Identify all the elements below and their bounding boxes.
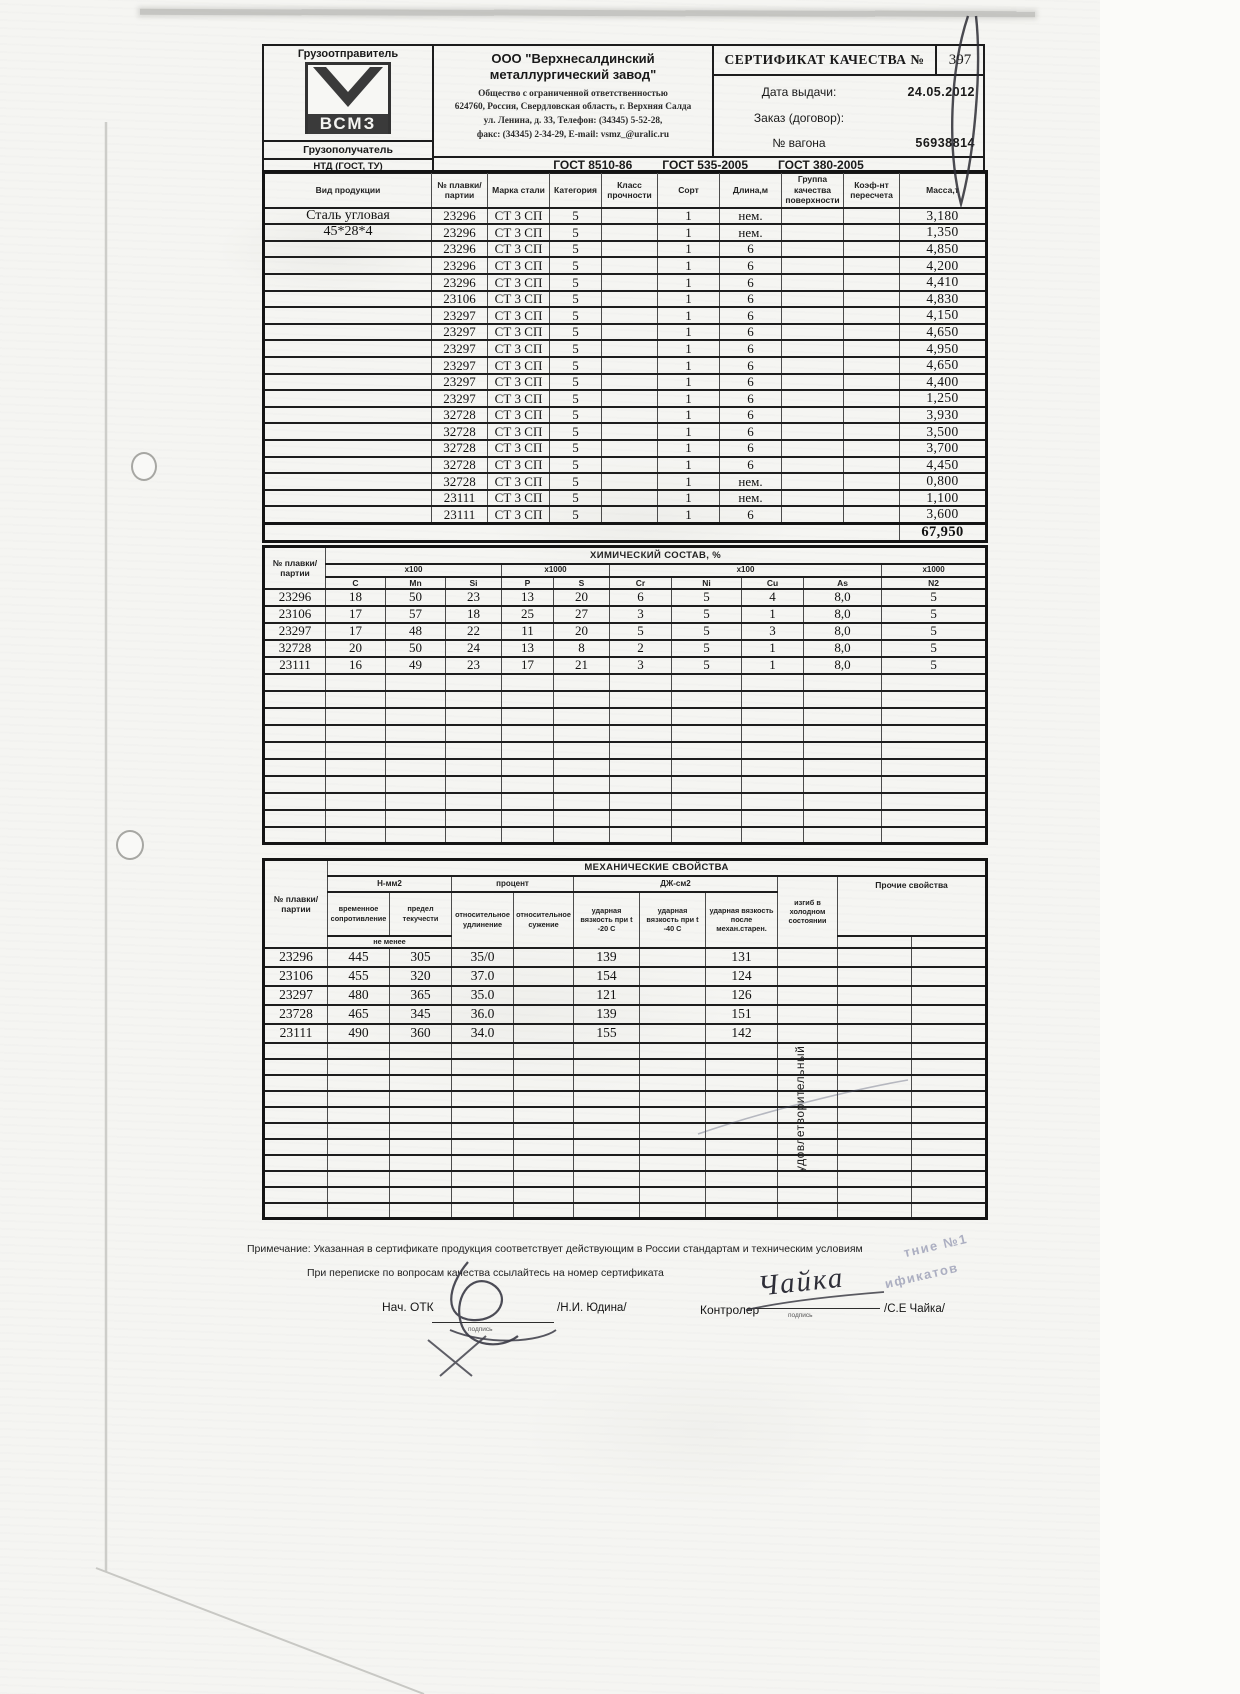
table-cell (602, 374, 658, 391)
table-row: 32728СТ 3 СП5163,930 (264, 407, 987, 424)
table-cell (782, 241, 844, 258)
table-cell: 8,0 (804, 589, 882, 606)
table-cell (386, 691, 446, 708)
table-cell (602, 307, 658, 324)
table-cell (844, 407, 900, 424)
table-cell: 4,650 (900, 324, 987, 341)
table-cell: 5 (550, 274, 602, 291)
table-cell: 8 (554, 640, 610, 657)
table-cell (838, 1171, 912, 1187)
table-cell (514, 1024, 574, 1043)
table-cell (264, 457, 432, 474)
table-cell (574, 1139, 640, 1155)
table-row: 2329644530535/0139131 (264, 948, 987, 967)
empty-row (264, 725, 987, 742)
table-cell (264, 523, 900, 541)
table-cell (452, 1155, 514, 1171)
table-cell: 32728 (432, 457, 488, 474)
table-cell (742, 810, 804, 827)
table-cell: 13 (502, 640, 554, 657)
table-cell: 32728 (432, 423, 488, 440)
table-cell: СТ 3 СП (488, 457, 550, 474)
table-cell: 23111 (432, 490, 488, 507)
table-cell (838, 1043, 912, 1059)
chemical-composition-table: № плавки/ партии ХИМИЧЕСКИЙ СОСТАВ, % х1… (262, 545, 988, 845)
otk-signature-tail (450, 1330, 556, 1341)
table-cell (778, 948, 838, 967)
table-cell (782, 423, 844, 440)
table-cell (844, 440, 900, 457)
total-row: 67,950 (264, 523, 987, 541)
table-cell: СТ 3 СП (488, 307, 550, 324)
table-cell (610, 742, 672, 759)
table-cell (706, 1059, 778, 1075)
table-cell (610, 810, 672, 827)
table-cell: 5 (882, 623, 987, 640)
table-cell: 8,0 (804, 623, 882, 640)
table-cell (264, 257, 432, 274)
table-cell (514, 1139, 574, 1155)
table-cell (264, 490, 432, 507)
table-cell (326, 725, 386, 742)
punch-hole (116, 830, 144, 860)
table-cell (602, 506, 658, 523)
element-header: Cr (610, 577, 672, 589)
signature-line (748, 1308, 880, 1309)
punch-hole (131, 452, 157, 481)
element-header: Cu (742, 577, 804, 589)
table-cell: нем. (720, 473, 782, 490)
table-cell: 23297 (432, 340, 488, 357)
issue-date-label: Дата выдачи: (714, 85, 884, 99)
table-cell: 5 (550, 324, 602, 341)
table-cell (640, 1059, 706, 1075)
table-cell (838, 1139, 912, 1155)
unit-header: ДЖ-см2 (574, 876, 778, 892)
table-cell: 5 (550, 423, 602, 440)
company-address-line: 624760, Россия, Свердловская область, г.… (440, 101, 706, 115)
footer-note: Примечание: Указанная в сертификате прод… (247, 1243, 863, 1255)
table-cell: 2 (610, 640, 672, 657)
table-cell (804, 708, 882, 725)
column-header: Масса,т (900, 172, 987, 208)
shipper-label: Грузоотправитель (264, 48, 432, 60)
table-cell: 1 (658, 473, 720, 490)
table-cell (882, 742, 987, 759)
table-cell (264, 725, 326, 742)
table-cell (574, 1075, 640, 1091)
multiplier: х1000 (502, 564, 610, 577)
table-cell: 5 (672, 589, 742, 606)
table-cell (838, 936, 912, 948)
table-cell (706, 1043, 778, 1059)
table-cell (844, 357, 900, 374)
table-cell (390, 1059, 452, 1075)
table-cell: 139 (574, 1005, 640, 1024)
table-cell (264, 1139, 328, 1155)
table-cell (264, 1107, 328, 1123)
table-cell (554, 725, 610, 742)
table-cell (778, 986, 838, 1005)
table-cell (844, 291, 900, 308)
table-cell (502, 793, 554, 810)
table-cell (574, 1123, 640, 1139)
table-cell (804, 810, 882, 827)
table-cell (264, 241, 432, 258)
table-cell (514, 948, 574, 967)
table-cell (514, 1091, 574, 1107)
table-cell (328, 1123, 390, 1139)
table-cell: 320 (390, 967, 452, 986)
table-cell: 24 (446, 640, 502, 657)
company-address-line: ул. Ленина, д. 33, Телефон: (34345) 5-52… (440, 115, 706, 129)
column-header: Длина,м (720, 172, 782, 208)
table-cell (706, 1075, 778, 1091)
table-cell (514, 1203, 574, 1219)
table-cell (502, 708, 554, 725)
table-cell (264, 708, 326, 725)
table-cell (782, 208, 844, 225)
table-cell (386, 776, 446, 793)
table-cell: 1 (658, 241, 720, 258)
table-cell: 1 (658, 490, 720, 507)
table-cell: 32728 (432, 473, 488, 490)
table-cell: 23106 (264, 606, 326, 623)
table-cell: 3 (742, 623, 804, 640)
order-label: Заказ (договор): (714, 111, 884, 125)
table-cell (514, 1107, 574, 1123)
table-cell (804, 827, 882, 844)
table-cell (706, 1155, 778, 1171)
table-cell: 4,950 (900, 340, 987, 357)
table-cell (502, 776, 554, 793)
table-cell (390, 1107, 452, 1123)
table-cell (554, 708, 610, 725)
table-cell (838, 1005, 912, 1024)
table-cell (326, 810, 386, 827)
table-cell: нем. (720, 490, 782, 507)
bend-result-vertical-text: удовлетворительный (793, 1005, 813, 1213)
shipper-cell: Грузоотправитель ВСМЗ (264, 46, 432, 142)
table-row: 32728СТ 3 СП5163,500 (264, 423, 987, 440)
table-cell (838, 1091, 912, 1107)
table-cell: 1 (658, 407, 720, 424)
table-cell (912, 1139, 987, 1155)
table-cell (838, 1059, 912, 1075)
table-cell (912, 936, 987, 948)
table-cell: 305 (390, 948, 452, 967)
table-cell (264, 827, 326, 844)
table-cell: 1,350 (900, 224, 987, 241)
table-cell (706, 1107, 778, 1123)
table-cell: 5 (672, 606, 742, 623)
table-cell (602, 390, 658, 407)
table-cell (386, 827, 446, 844)
table-cell: 6 (720, 340, 782, 357)
table-cell: 3,700 (900, 440, 987, 457)
table-cell (672, 810, 742, 827)
table-cell: 1 (658, 291, 720, 308)
logo-v-icon (308, 65, 388, 114)
table-cell (782, 374, 844, 391)
table-cell (452, 1171, 514, 1187)
table-cell (882, 691, 987, 708)
table-cell: 23728 (264, 1005, 328, 1024)
table-cell (446, 691, 502, 708)
table-cell: 11 (502, 623, 554, 640)
column-header: Категория (550, 172, 602, 208)
element-header: As (804, 577, 882, 589)
table-cell: 23297 (432, 374, 488, 391)
table-cell (574, 1107, 640, 1123)
table-cell (602, 423, 658, 440)
table-cell: 8,0 (804, 640, 882, 657)
table-cell (912, 1155, 987, 1171)
table-cell (782, 457, 844, 474)
table-cell (452, 1107, 514, 1123)
certificate-info-cell: СЕРТИФИКАТ КАЧЕСТВА № 397 Дата выдачи: 2… (714, 46, 983, 156)
table-cell: 480 (328, 986, 390, 1005)
table-cell (554, 759, 610, 776)
table-cell (328, 1107, 390, 1123)
table-cell (446, 725, 502, 742)
table-cell: 23106 (264, 967, 328, 986)
table-cell (264, 1123, 328, 1139)
table-cell (672, 793, 742, 810)
header-right-column: ООО "Верхнесалдинский металлургический з… (434, 46, 983, 172)
table-cell (844, 224, 900, 241)
table-cell: 23296 (264, 589, 326, 606)
table-cell (264, 793, 326, 810)
table-row: 23297СТ 3 СП5164,150 (264, 307, 987, 324)
empty-row (264, 1139, 987, 1155)
company-address: Общество с ограниченной ответственностью… (440, 88, 706, 144)
company-name: ООО "Верхнесалдинский металлургический з… (440, 51, 706, 84)
table-cell: СТ 3 СП (488, 241, 550, 258)
table-cell (264, 776, 326, 793)
paper-fold-line (96, 1568, 424, 1694)
table-cell (672, 759, 742, 776)
table-cell (264, 674, 326, 691)
wagon-label: № вагона (714, 136, 884, 150)
table-cell (602, 208, 658, 225)
table-cell (264, 423, 432, 440)
product-table-header-row: Вид продукции № плавки/ партии Марка ста… (264, 172, 987, 208)
table-cell (804, 742, 882, 759)
table-cell (446, 674, 502, 691)
table-cell: 6 (720, 274, 782, 291)
table-cell (390, 1043, 452, 1059)
table-cell (446, 776, 502, 793)
issue-date-value: 24.05.2012 (884, 85, 983, 99)
mech-title-row: № плавки/ партии МЕХАНИЧЕСКИЕ СВОЙСТВА (264, 860, 987, 876)
table-cell: 465 (328, 1005, 390, 1024)
table-cell (390, 1171, 452, 1187)
table-cell: СТ 3 СП (488, 324, 550, 341)
table-cell: 5 (672, 657, 742, 674)
table-cell (672, 776, 742, 793)
table-cell: 6 (720, 390, 782, 407)
table-cell (502, 759, 554, 776)
table-cell (804, 725, 882, 742)
table-cell (574, 1091, 640, 1107)
table-cell: СТ 3 СП (488, 224, 550, 241)
not-less-label: не менее (328, 936, 452, 948)
table-cell: 3,930 (900, 407, 987, 424)
table-cell: 35/0 (452, 948, 514, 967)
table-cell (706, 1123, 778, 1139)
table-cell: 23 (446, 589, 502, 606)
bend-header: изгиб в холодном состоянии (778, 876, 838, 948)
table-cell (844, 473, 900, 490)
table-cell: 32728 (432, 440, 488, 457)
table-cell (264, 506, 432, 523)
table-cell: 3 (610, 606, 672, 623)
table-cell (782, 473, 844, 490)
table-cell: СТ 3 СП (488, 407, 550, 424)
table-cell (554, 742, 610, 759)
table-cell (844, 324, 900, 341)
table-row: 32728СТ 3 СП51нем.0,800 (264, 473, 987, 490)
column-header: Вид продукции (264, 172, 432, 208)
table-cell (912, 986, 987, 1005)
header-left-column: Грузоотправитель ВСМЗ Грузополучатель НТ… (264, 46, 434, 172)
scanned-certificate-page: Грузоотправитель ВСМЗ Грузополучатель НТ… (0, 0, 1240, 1694)
empty-row (264, 708, 987, 725)
table-cell (554, 810, 610, 827)
table-cell: 17 (326, 623, 386, 640)
table-cell (804, 776, 882, 793)
table-cell (328, 1091, 390, 1107)
table-cell: 21 (554, 657, 610, 674)
table-cell: 18 (326, 589, 386, 606)
table-cell: 35.0 (452, 986, 514, 1005)
table-cell (264, 1091, 328, 1107)
table-cell (804, 759, 882, 776)
vsmz-logo: ВСМЗ (305, 62, 391, 134)
pen-cross-strokes (428, 1336, 486, 1376)
table-cell: 23296 (432, 208, 488, 225)
table-cell: 1 (658, 423, 720, 440)
table-cell (602, 457, 658, 474)
table-cell: 8,0 (804, 657, 882, 674)
mech-title: МЕХАНИЧЕСКИЕ СВОЙСТВА (328, 860, 987, 876)
table-cell (264, 307, 432, 324)
table-cell (326, 827, 386, 844)
table-cell: 5 (550, 241, 602, 258)
table-cell: 1 (658, 357, 720, 374)
table-cell (328, 1043, 390, 1059)
table-cell: 5 (550, 224, 602, 241)
empty-row (264, 776, 987, 793)
table-row: 45*28*423296СТ 3 СП51нем.1,350 (264, 224, 987, 241)
table-cell (264, 1059, 328, 1075)
company-cell: ООО "Верхнесалдинский металлургический з… (434, 46, 714, 156)
table-cell: 5 (882, 589, 987, 606)
table-cell (328, 1187, 390, 1203)
table-cell (838, 1024, 912, 1043)
table-cell (452, 1059, 514, 1075)
table-cell: 18 (446, 606, 502, 623)
table-cell (446, 708, 502, 725)
table-cell: 5 (882, 606, 987, 623)
table-cell: СТ 3 СП (488, 340, 550, 357)
table-cell (602, 490, 658, 507)
table-cell (328, 1075, 390, 1091)
table-cell (912, 1187, 987, 1203)
table-cell (574, 1059, 640, 1075)
table-cell (610, 827, 672, 844)
table-cell: 23297 (432, 357, 488, 374)
table-cell (514, 1171, 574, 1187)
empty-row (264, 1091, 987, 1107)
table-cell: 20 (326, 640, 386, 657)
table-cell (742, 691, 804, 708)
table-cell (328, 1203, 390, 1219)
table-cell: 5 (882, 640, 987, 657)
table-cell: СТ 3 СП (488, 473, 550, 490)
table-row: 327282050241382518,05 (264, 640, 987, 657)
element-header: Mn (386, 577, 446, 589)
subheader: относительное удлинение (452, 892, 514, 948)
table-cell (844, 390, 900, 407)
table-cell (554, 691, 610, 708)
table-row: 2372846534536.0139151 (264, 1005, 987, 1024)
heat-number-header: № плавки/ партии (264, 860, 328, 948)
table-cell (610, 793, 672, 810)
company-address-line: Общество с ограниченной ответственностью (440, 88, 706, 102)
table-cell: 4,410 (900, 274, 987, 291)
table-cell: нем. (720, 224, 782, 241)
table-cell: 23297 (264, 986, 328, 1005)
table-cell (838, 1075, 912, 1091)
table-cell (804, 793, 882, 810)
table-cell: 6 (720, 407, 782, 424)
table-cell: 6 (720, 440, 782, 457)
table-row: 23111СТ 3 СП5163,600 (264, 506, 987, 523)
table-cell: 23296 (432, 274, 488, 291)
table-cell: 445 (328, 948, 390, 967)
table-cell: 1 (658, 307, 720, 324)
table-cell: 490 (328, 1024, 390, 1043)
table-cell (844, 274, 900, 291)
table-cell: 1 (658, 506, 720, 523)
table-cell (672, 708, 742, 725)
other-properties-header: Прочие свойства (838, 876, 987, 936)
table-cell (514, 1187, 574, 1203)
table-cell (672, 725, 742, 742)
subheader: относительное сужение (514, 892, 574, 948)
table-cell (640, 1155, 706, 1171)
paper-right-margin (1100, 0, 1240, 1694)
table-cell (514, 1005, 574, 1024)
table-cell (640, 1107, 706, 1123)
empty-row (264, 1187, 987, 1203)
table-cell (640, 1203, 706, 1219)
table-cell: 32728 (264, 640, 326, 657)
table-cell: 1 (658, 208, 720, 225)
table-cell (264, 324, 432, 341)
empty-row (264, 810, 987, 827)
table-cell (264, 291, 432, 308)
table-cell: 32728 (432, 407, 488, 424)
stamp-fragment: ификатов (883, 1260, 960, 1292)
table-cell: 5 (550, 490, 602, 507)
table-cell: 1 (658, 374, 720, 391)
table-cell (912, 1005, 987, 1024)
table-cell: 5 (882, 657, 987, 674)
table-cell: 5 (550, 340, 602, 357)
